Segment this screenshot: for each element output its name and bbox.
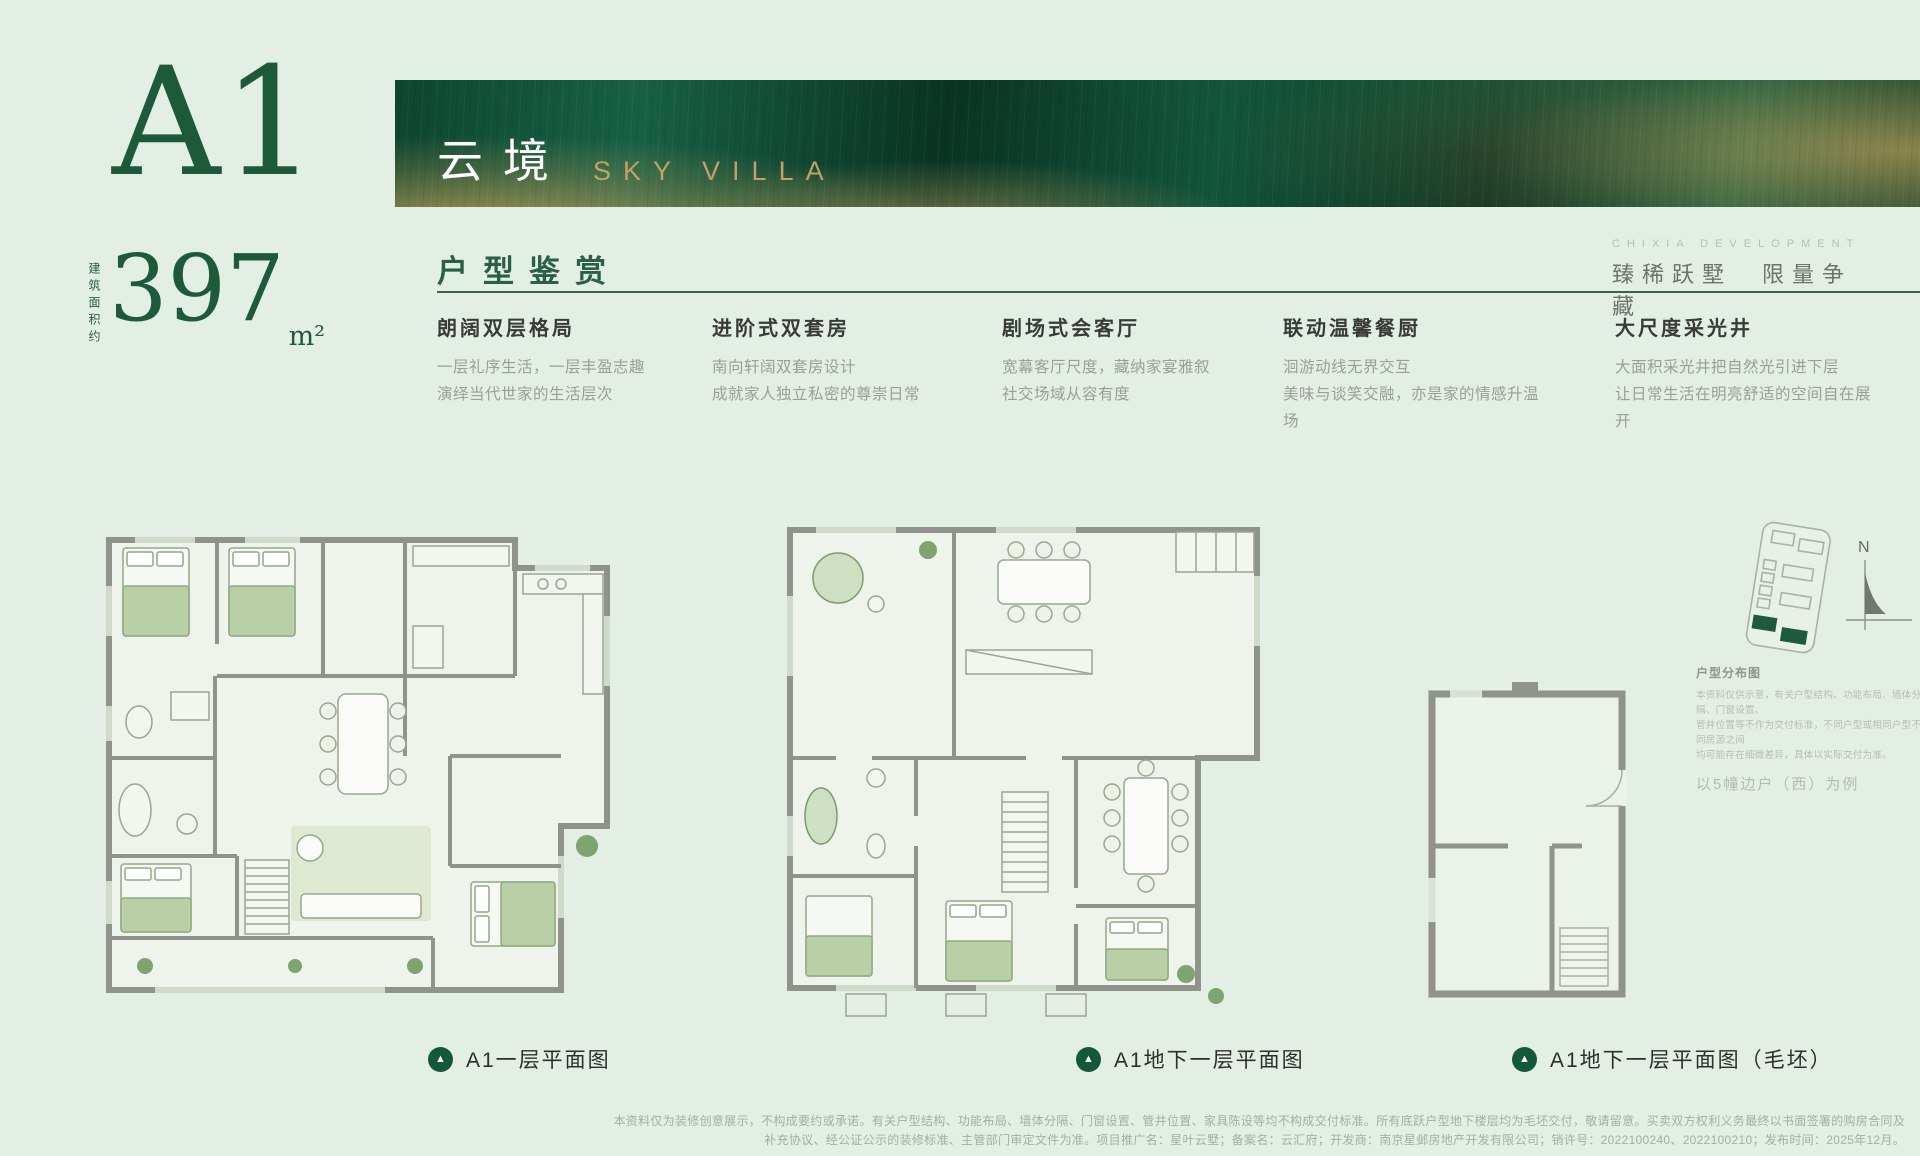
building-outline xyxy=(1745,521,1832,654)
feature-column-4: 联动温馨餐厨 洄游动线无界交互 美味与谈笑交融，亦是家的情感升温场 xyxy=(1283,312,1545,435)
disclaimer-line-1: 本资料仅为装修创意展示，不构成要约或承诺。有关户型结构、功能布局、墙体分隔、门窗… xyxy=(613,1112,1905,1131)
plan3-caption: ▲ A1地下一层平面图（毛坯） xyxy=(1512,1044,1833,1074)
malachite-banner: 云境 SKY VILLA xyxy=(395,80,1920,207)
feature-column-5: 大尺度采光井 大面积采光井把自然光引进下层 让日常生活在明亮舒适的空间自在展开 xyxy=(1615,312,1877,435)
site-plan-diagram: N xyxy=(1696,520,1920,658)
developer-block: CHIXIA DEVELOPMENT 臻稀跃墅 限量争藏 xyxy=(1612,238,1872,321)
feature-line: 南向轩阔双套房设计 xyxy=(712,354,974,381)
feature-line: 宽幕客厅尺度，藏纳家宴雅叙 xyxy=(1002,354,1264,381)
plan2-caption: ▲ A1地下一层平面图 xyxy=(1076,1044,1305,1074)
note-line: 本资料仅供示意，有关户型结构、功能布局、墙体分隔、门窗设置、 xyxy=(1696,690,1920,716)
up-arrow-icon: ▲ xyxy=(1512,1047,1537,1072)
site-plan-note: 本资料仅供示意，有关户型结构、功能布局、墙体分隔、门窗设置、 管井位置等不作为交… xyxy=(1696,688,1920,763)
floor-plan-level1 xyxy=(95,526,625,1026)
feature-line: 让日常生活在明亮舒适的空间自在展开 xyxy=(1615,381,1877,435)
feature-title: 大尺度采光井 xyxy=(1615,312,1877,341)
feature-title: 联动温馨餐厨 xyxy=(1283,312,1545,341)
plan2-caption-text: A1地下一层平面图 xyxy=(1114,1044,1305,1074)
feature-line: 演绎当代世家的生活层次 xyxy=(437,381,699,408)
feature-line: 洄游动线无界交互 xyxy=(1283,354,1545,381)
area-block: 建筑面积约 397 m² xyxy=(86,248,325,354)
banner-title-cn: 云境 xyxy=(437,125,569,191)
plan1-dining-table xyxy=(320,694,406,794)
floor-plan-basement-bare xyxy=(1420,678,1635,1003)
plan1-caption: ▲ A1一层平面图 xyxy=(428,1044,611,1074)
area-caption: 建筑面积约 xyxy=(86,262,103,354)
plan1-stairs xyxy=(245,860,289,934)
up-arrow-icon: ▲ xyxy=(428,1047,453,1072)
north-arrow-icon: N xyxy=(1846,539,1912,630)
site-plan-example: 以5幢边户（西）为例 xyxy=(1696,773,1920,794)
developer-name-en: CHIXIA DEVELOPMENT xyxy=(1612,238,1872,250)
feature-line: 成就家人独立私密的尊崇日常 xyxy=(712,381,974,408)
disclaimer-line-2: 补充协议、经公证公示的装修标准、主管部门审定文件为准。项目推广名：星叶云墅；备案… xyxy=(613,1131,1905,1150)
site-plan-title: 户型分布图 xyxy=(1696,664,1920,681)
feature-column-1: 朗阔双层格局 一层礼序生活，一层丰盈志趣 演绎当代世家的生活层次 xyxy=(437,312,699,408)
brochure-page: A1 建筑面积约 397 m² 云境 SKY VILLA 户型鉴赏 CHIXIA… xyxy=(0,0,1920,1156)
legal-disclaimer: 本资料仅为装修创意展示，不构成要约或承诺。有关户型结构、功能布局、墙体分隔、门窗… xyxy=(613,1112,1905,1150)
feature-line: 大面积采光井把自然光引进下层 xyxy=(1615,354,1877,381)
plan3-stairs xyxy=(1560,928,1608,986)
banner-title-en: SKY VILLA xyxy=(593,156,836,187)
svg-text:N: N xyxy=(1858,539,1870,556)
feature-title: 剧场式会客厅 xyxy=(1002,312,1264,341)
area-unit: m² xyxy=(289,321,325,352)
plan3-caption-text: A1地下一层平面图（毛坯） xyxy=(1550,1044,1833,1074)
feature-title: 进阶式双套房 xyxy=(712,312,974,341)
feature-line: 美味与谈笑交融，亦是家的情感升温场 xyxy=(1283,381,1545,435)
note-line: 均可能存在细微差异，具体以实际交付为准。 xyxy=(1696,750,1892,761)
plan1-caption-text: A1一层平面图 xyxy=(466,1044,611,1074)
feature-line: 一层礼序生活，一层丰盈志趣 xyxy=(437,354,699,381)
area-value: 397 xyxy=(109,248,285,331)
up-arrow-icon: ▲ xyxy=(1076,1047,1101,1072)
plan2-dining-table-top xyxy=(998,542,1090,622)
unit-type-label: A1 xyxy=(112,48,320,198)
feature-column-2: 进阶式双套房 南向轩阔双套房设计 成就家人独立私密的尊崇日常 xyxy=(712,312,974,408)
floor-plan-basement xyxy=(776,516,1271,1026)
plan1-living-room xyxy=(291,826,431,921)
feature-column-3: 剧场式会客厅 宽幕客厅尺度，藏纳家宴雅叙 社交场域从容有度 xyxy=(1002,312,1264,408)
divider-rule xyxy=(437,291,1920,293)
note-line: 管井位置等不作为交付标准，不同户型或相同户型不同房源之间 xyxy=(1696,720,1920,746)
feature-line: 社交场域从容有度 xyxy=(1002,381,1264,408)
plan2-light-wells xyxy=(846,994,1086,1016)
section-heading: 户型鉴赏 xyxy=(437,246,621,291)
feature-title: 朗阔双层格局 xyxy=(437,312,699,341)
site-plan-block: N 户型分布图 本资料仅供示意，有关户型结构、功能布局、墙体分隔、门窗设置、 管… xyxy=(1696,520,1920,794)
plan2-stairs xyxy=(1002,792,1048,892)
